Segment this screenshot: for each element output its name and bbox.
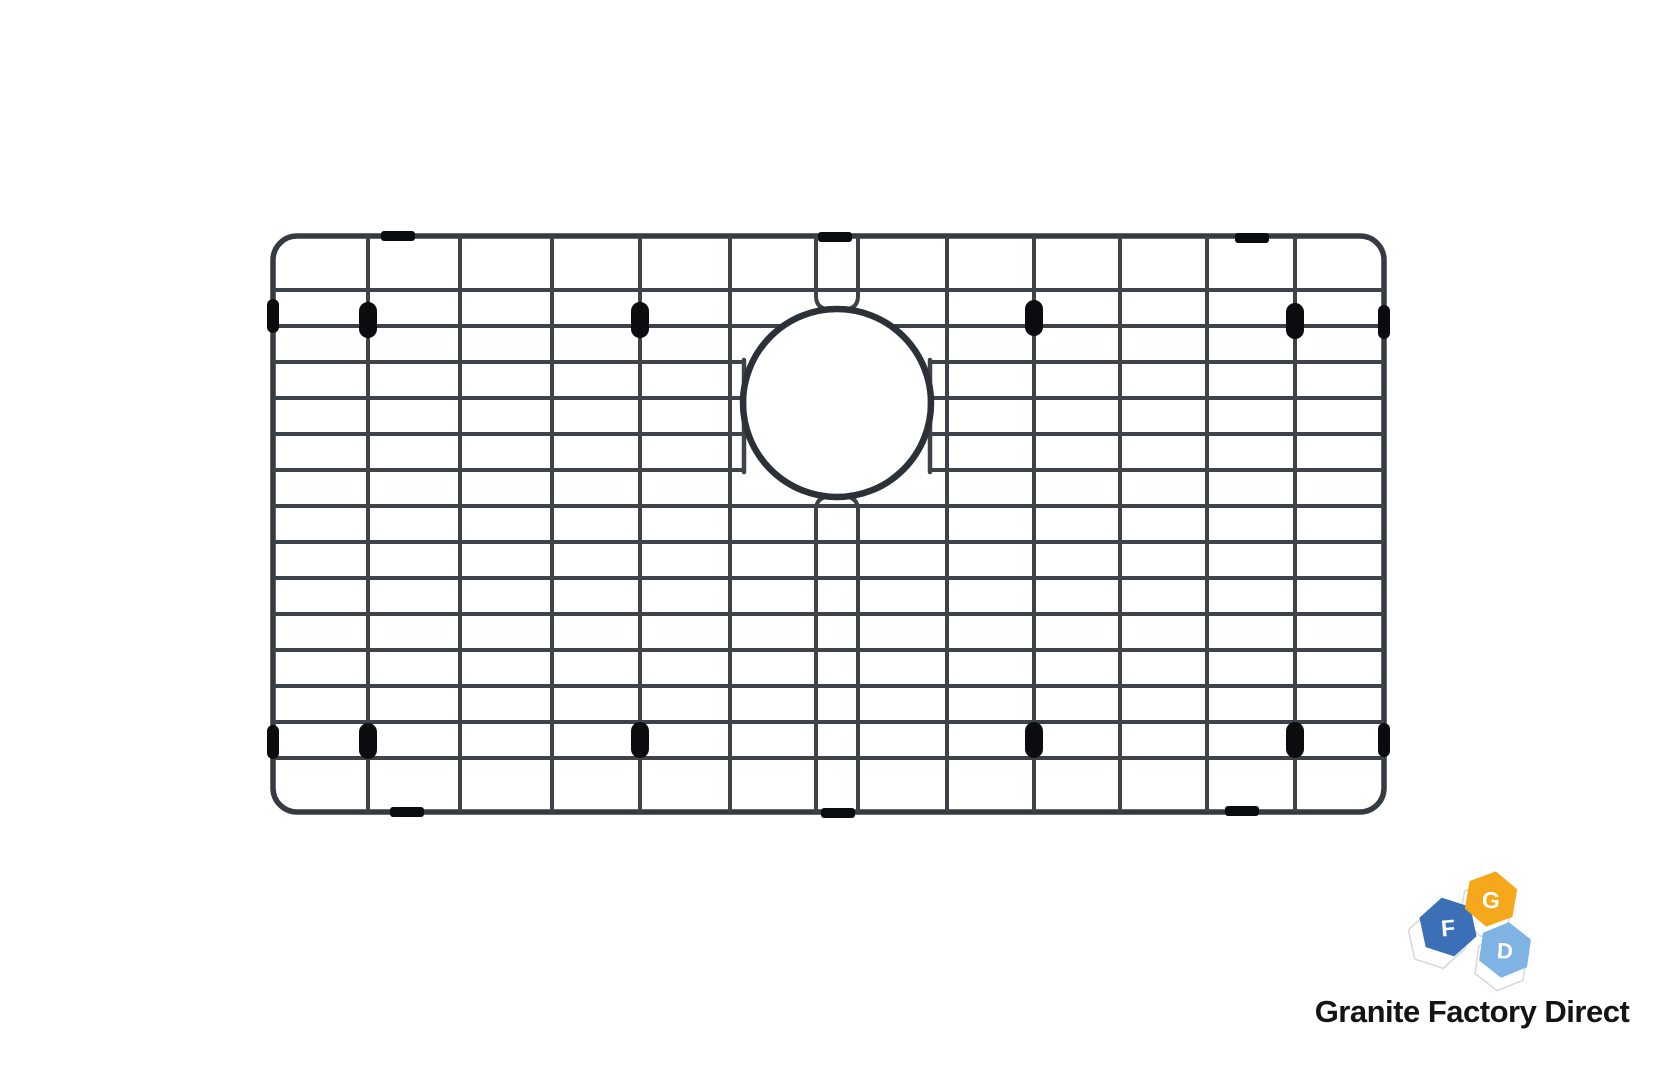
rubber-sleeve-bumper (821, 808, 855, 818)
rubber-foot-bumper (267, 299, 279, 333)
logo-letter-f: F (1440, 914, 1456, 941)
rubber-foot-bumper (1378, 305, 1390, 339)
rubber-sleeve-bumper (381, 231, 415, 241)
rubber-pill-bumper (1286, 303, 1304, 339)
grid-frame (273, 236, 1384, 812)
logo-letter-g: G (1481, 886, 1501, 913)
logo-letter-d: D (1496, 938, 1513, 964)
rubber-pill-bumper (359, 302, 377, 338)
rubber-pill-bumper (1286, 722, 1304, 758)
grid-middle-pair-wire (844, 236, 858, 310)
rubber-pill-bumper (1025, 300, 1043, 336)
grid-middle-pair-wire (816, 236, 830, 310)
rubber-pill-bumper (631, 302, 649, 338)
rubber-pill-bumper (359, 723, 377, 759)
brand-logo-hexagons: DFG (1405, 867, 1533, 994)
rubber-foot-bumper (267, 725, 279, 759)
brand-name: Granite Factory Direct (1292, 994, 1652, 1030)
rubber-sleeve-bumper (1235, 233, 1269, 243)
rubber-pill-bumper (1025, 722, 1043, 758)
rubber-sleeve-bumper (390, 807, 424, 817)
rubber-pill-bumper (631, 722, 649, 758)
sink-grid (267, 231, 1390, 818)
rubber-foot-bumper (1378, 723, 1390, 757)
rubber-sleeve-bumper (1225, 806, 1259, 816)
sink-grid-product-image: DFG (0, 0, 1671, 1066)
drain-ring (743, 309, 931, 497)
product-page-canvas: DFG Granite Factory Direct (0, 0, 1671, 1066)
rubber-sleeve-bumper (818, 232, 852, 242)
